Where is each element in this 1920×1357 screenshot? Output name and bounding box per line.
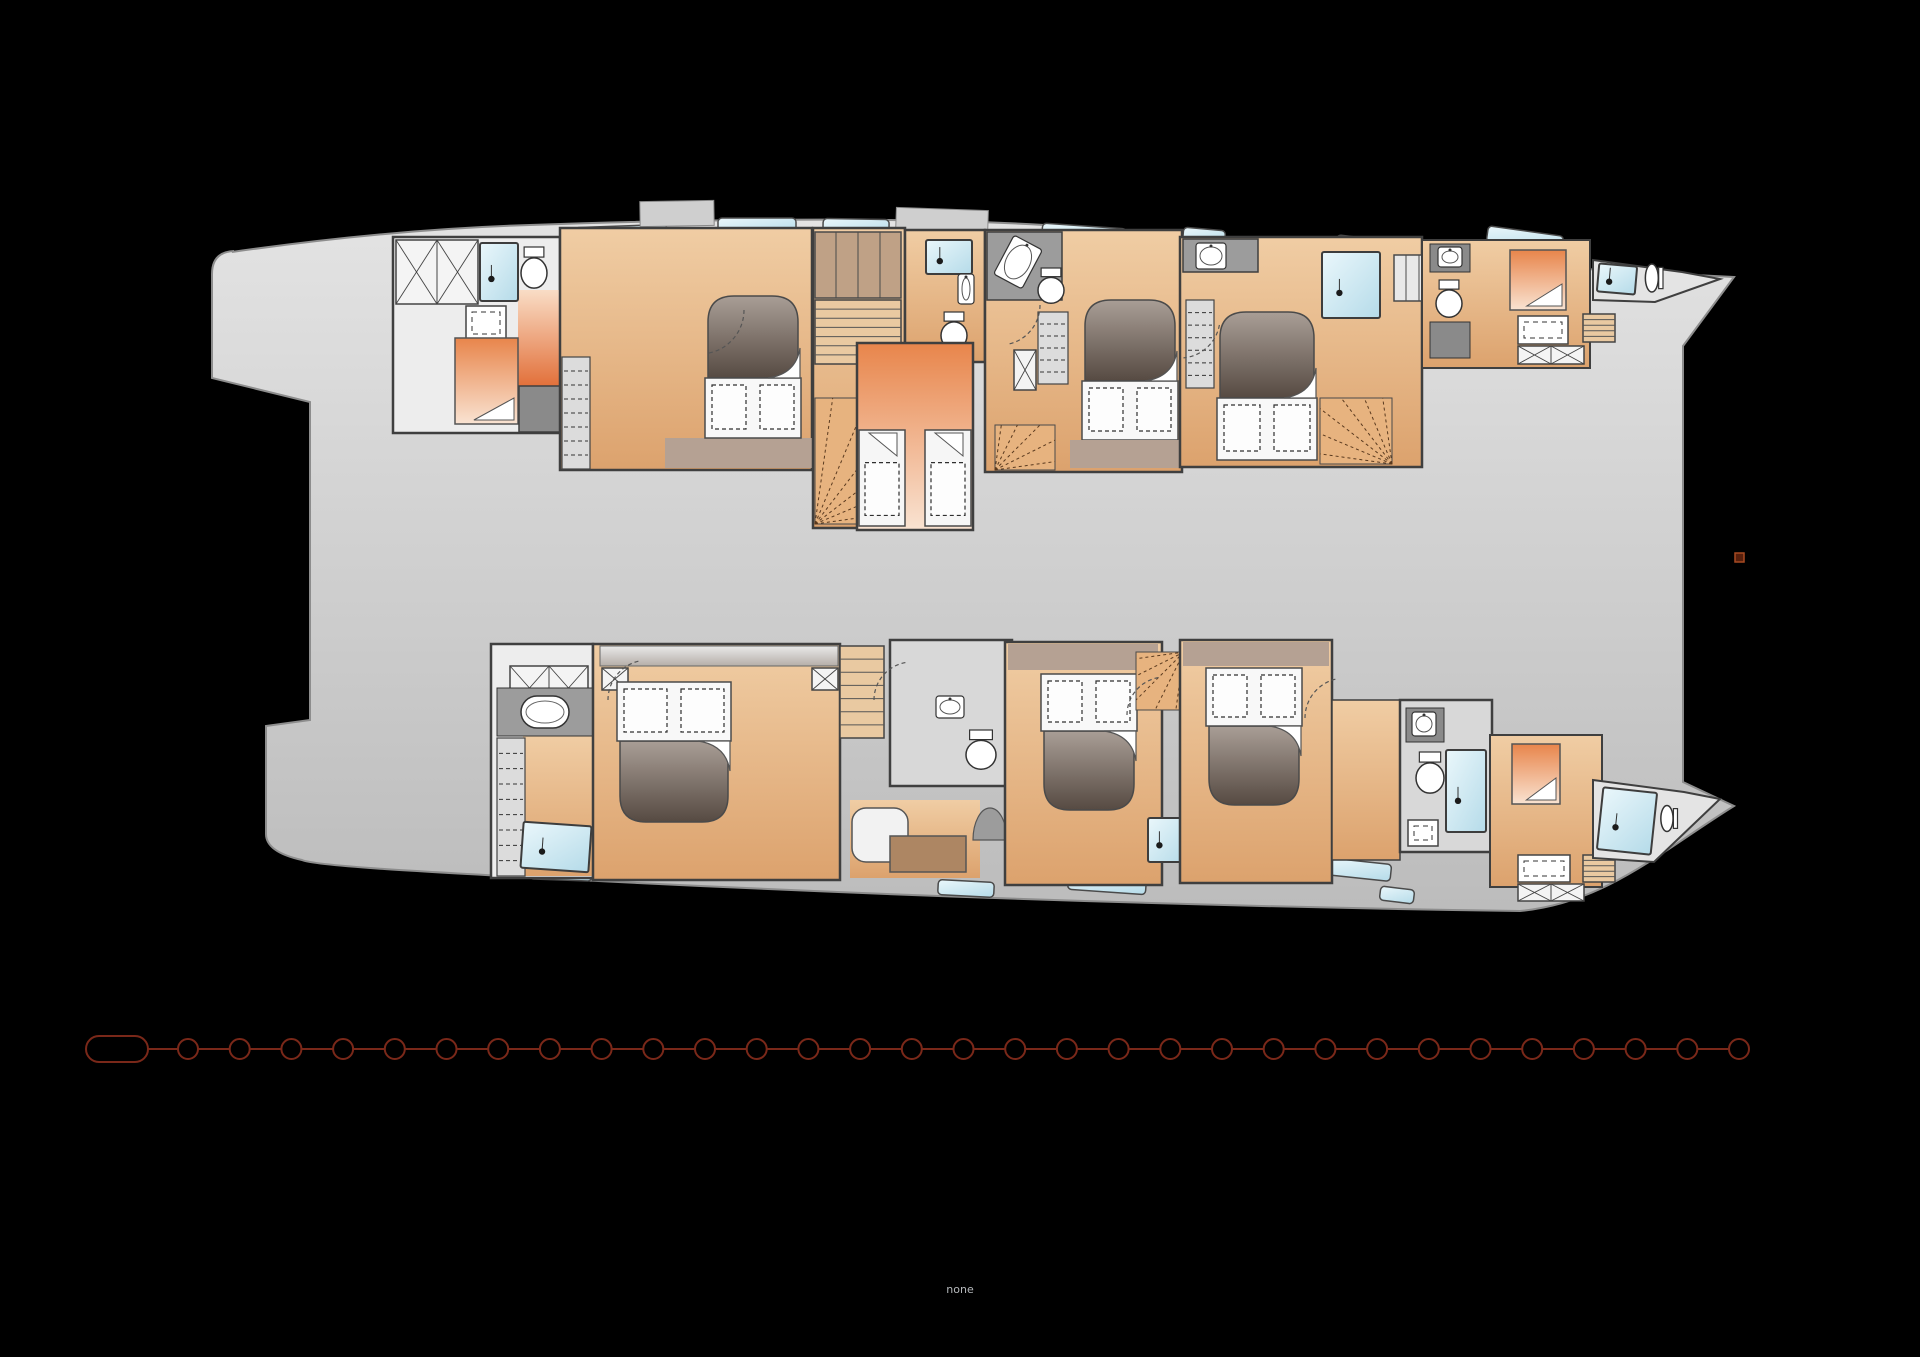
chain-link — [540, 1039, 560, 1059]
chain-link — [954, 1039, 974, 1059]
berth-mattress — [1510, 250, 1566, 310]
chain-link — [1522, 1039, 1542, 1059]
shower — [1322, 252, 1380, 318]
shower — [520, 822, 591, 873]
chain-link — [1367, 1039, 1387, 1059]
chain-link — [1677, 1039, 1697, 1059]
chain-link — [1729, 1039, 1749, 1059]
floor-area — [890, 836, 966, 872]
anchor-chain — [86, 1036, 1749, 1062]
toilet — [1436, 280, 1462, 317]
toilet — [1038, 268, 1064, 303]
chain-link — [1264, 1039, 1284, 1059]
chain-link — [1160, 1039, 1180, 1059]
shower — [480, 243, 518, 301]
chain-capsule-link — [86, 1036, 148, 1062]
washbasin — [958, 274, 974, 304]
vanity-unit — [1518, 855, 1570, 882]
chain-link — [798, 1039, 818, 1059]
chain-link — [1005, 1039, 1025, 1059]
floor-area — [518, 290, 560, 386]
chain-link — [695, 1039, 715, 1059]
toilet — [521, 247, 547, 288]
double-bed — [1041, 674, 1137, 810]
shower — [1446, 750, 1486, 832]
6 — [1320, 398, 1392, 464]
floor-area — [1430, 322, 1470, 358]
chain-link — [178, 1039, 198, 1059]
toilet — [966, 730, 996, 769]
double-bed — [617, 682, 731, 822]
single-bed — [925, 430, 971, 526]
double-bed — [1206, 668, 1302, 805]
chain-link — [1574, 1039, 1594, 1059]
washbasin — [1196, 243, 1226, 269]
toilet — [1661, 806, 1678, 832]
7 — [562, 357, 590, 469]
chain-link — [902, 1039, 922, 1059]
chain-link — [850, 1039, 870, 1059]
chain-link — [1471, 1039, 1491, 1059]
marker-dot — [1735, 553, 1744, 562]
floor-area — [519, 386, 560, 432]
5 — [1038, 312, 1068, 384]
shower — [926, 240, 972, 274]
chain-link — [592, 1039, 612, 1059]
chain-link — [230, 1039, 250, 1059]
wardrobe — [812, 668, 838, 690]
chain-link — [643, 1039, 663, 1059]
chain-link — [1212, 1039, 1232, 1059]
chain-link — [1109, 1039, 1129, 1059]
deck-plan-canvas: none — [0, 0, 1920, 1357]
wardrobe — [1518, 346, 1584, 364]
4 — [1583, 314, 1615, 342]
chain-link — [488, 1039, 508, 1059]
shower — [1597, 263, 1637, 294]
floor-area — [1070, 440, 1182, 468]
wardrobe — [1014, 350, 1036, 390]
5 — [995, 425, 1055, 470]
berth-mattress — [1512, 744, 1560, 804]
berth-mattress — [455, 338, 518, 424]
chain-link — [1626, 1039, 1646, 1059]
floor-area — [640, 200, 714, 226]
single-bed — [859, 430, 905, 526]
shower — [1597, 787, 1657, 854]
toilet — [1416, 752, 1444, 793]
chain-link — [385, 1039, 405, 1059]
washbasin — [936, 696, 964, 718]
chain-link — [333, 1039, 353, 1059]
chain-link — [1057, 1039, 1077, 1059]
washbasin — [1412, 712, 1436, 736]
vanity-unit — [466, 306, 506, 340]
double-bed — [705, 296, 801, 438]
bottom-label: none — [946, 1283, 974, 1296]
vanity-unit — [1408, 820, 1438, 846]
wardrobe — [1518, 884, 1584, 901]
wardrobe — [396, 240, 478, 304]
chain-link — [281, 1039, 301, 1059]
bathtub — [521, 696, 569, 728]
catamaran-deck-plan: none — [0, 0, 1920, 1357]
chain-link — [1315, 1039, 1335, 1059]
5 — [1136, 652, 1184, 710]
chain-link — [437, 1039, 457, 1059]
toilet — [1645, 264, 1663, 292]
floor-area — [1332, 700, 1400, 860]
6 — [840, 646, 884, 738]
floor-area — [1183, 642, 1329, 666]
chain-link — [1419, 1039, 1439, 1059]
hull-window — [938, 880, 995, 898]
double-bed — [1217, 312, 1317, 460]
bed-canopy — [600, 646, 838, 666]
floor-area — [665, 438, 813, 468]
vanity-unit — [1518, 316, 1568, 344]
red-marker-dot — [1735, 553, 1744, 562]
double-bed — [1082, 300, 1178, 440]
chain-link — [747, 1039, 767, 1059]
washbasin — [1438, 247, 1462, 267]
